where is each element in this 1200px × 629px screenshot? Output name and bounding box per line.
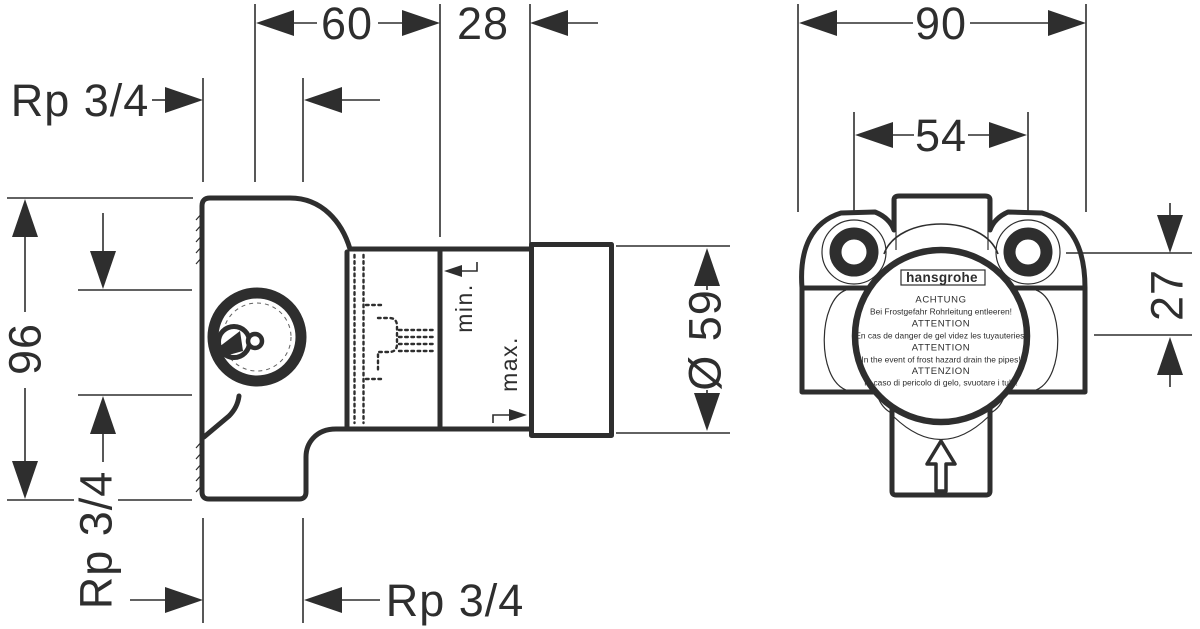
thread-top-label: Rp 3/4	[11, 75, 150, 126]
hidden-seat-profile	[378, 318, 397, 371]
warning-text-fr: En cas de danger de gel videz les tuyaut…	[855, 331, 1026, 341]
min-leader	[461, 262, 477, 271]
warning-heading-fr: ATTENTION	[912, 319, 971, 330]
arrowhead-left	[855, 122, 893, 148]
arrowhead-left-small	[444, 265, 462, 277]
arrowhead-up	[1157, 337, 1183, 375]
arrowhead-down	[694, 393, 720, 431]
warning-text-en: In the event of frost hazard drain the p…	[861, 355, 1020, 365]
dim-90-label: 90	[915, 0, 967, 49]
dim-60-label: 60	[321, 0, 373, 49]
screw-hole-left	[836, 234, 873, 271]
warning-text-it: In caso di pericolo di gelo, svuotare i …	[864, 378, 1018, 388]
dimension-thread-top: Rp 3/4	[11, 75, 380, 182]
valve-dimension-drawing: 60 28 Rp 3/4 96	[0, 0, 1200, 629]
arrowhead-right	[989, 122, 1027, 148]
warning-heading-en: ATTENTION	[912, 343, 971, 354]
cartridge-circle	[213, 293, 301, 381]
arrowhead-up	[90, 396, 116, 434]
dimension-depth-60-28: 60 28	[255, 0, 598, 244]
max-label: max.	[496, 336, 522, 392]
side-view: 60 28 Rp 3/4 96	[0, 0, 731, 626]
arrowhead-left	[799, 10, 837, 36]
flow-direction-arrow	[927, 441, 955, 491]
arrowhead-left	[256, 10, 294, 36]
arrowhead-left	[304, 87, 342, 113]
dimension-thread-side: Rp 3/4	[71, 213, 193, 620]
arrowhead-right-small	[509, 409, 527, 421]
warning-heading-it: ATTENZION	[912, 366, 971, 377]
dim-27-label: 27	[1142, 269, 1193, 321]
arrowhead-down	[90, 251, 116, 289]
dim-28-label: 28	[457, 0, 509, 49]
dia-59-label: Ø 59	[680, 289, 731, 391]
arrowhead-up	[694, 248, 720, 286]
min-label: min.	[451, 283, 477, 332]
screw-hole-right	[1010, 234, 1047, 271]
arrowhead-right	[165, 87, 203, 113]
hidden-lines	[355, 255, 437, 423]
arrowhead-right	[1048, 10, 1086, 36]
dim-54-label: 54	[915, 110, 967, 161]
dimension-width-90: 90	[798, 0, 1086, 212]
warning-text-de: Bei Frostgefahr Rohrleitung entleeren!	[870, 307, 1012, 317]
spindle-end-block	[532, 245, 612, 436]
dimension-thread-bottom: Rp 3/4	[130, 518, 524, 626]
arrowhead-down	[1157, 215, 1183, 253]
brand-logo: hansgrohe	[906, 270, 978, 285]
warning-heading-de: ACHTUNG	[915, 295, 966, 306]
front-view: 90 54 27	[798, 0, 1193, 495]
dimension-height-96: 96	[0, 198, 193, 500]
dim-96-label: 96	[0, 323, 51, 375]
arrowhead-down	[12, 461, 38, 499]
right-bulge-arc	[1036, 290, 1058, 390]
thread-side-label: Rp 3/4	[71, 471, 122, 610]
arrowhead-up	[12, 199, 38, 237]
body-notch	[204, 396, 239, 437]
max-leader	[493, 415, 510, 423]
technical-drawing-page: 60 28 Rp 3/4 96	[0, 0, 1200, 629]
arrowhead-left	[530, 10, 568, 36]
min-max-annotations: min. max.	[444, 262, 527, 423]
spindle-knob	[248, 334, 262, 348]
arrowhead-right	[402, 10, 440, 36]
dimension-hole-spacing-54: 54	[854, 110, 1028, 215]
left-bulge-arc	[824, 290, 846, 390]
arrowhead-left	[304, 587, 342, 613]
thread-bottom-label: Rp 3/4	[386, 575, 525, 626]
arrowhead-right	[165, 587, 203, 613]
dimension-diameter-59: Ø 59	[616, 246, 731, 433]
